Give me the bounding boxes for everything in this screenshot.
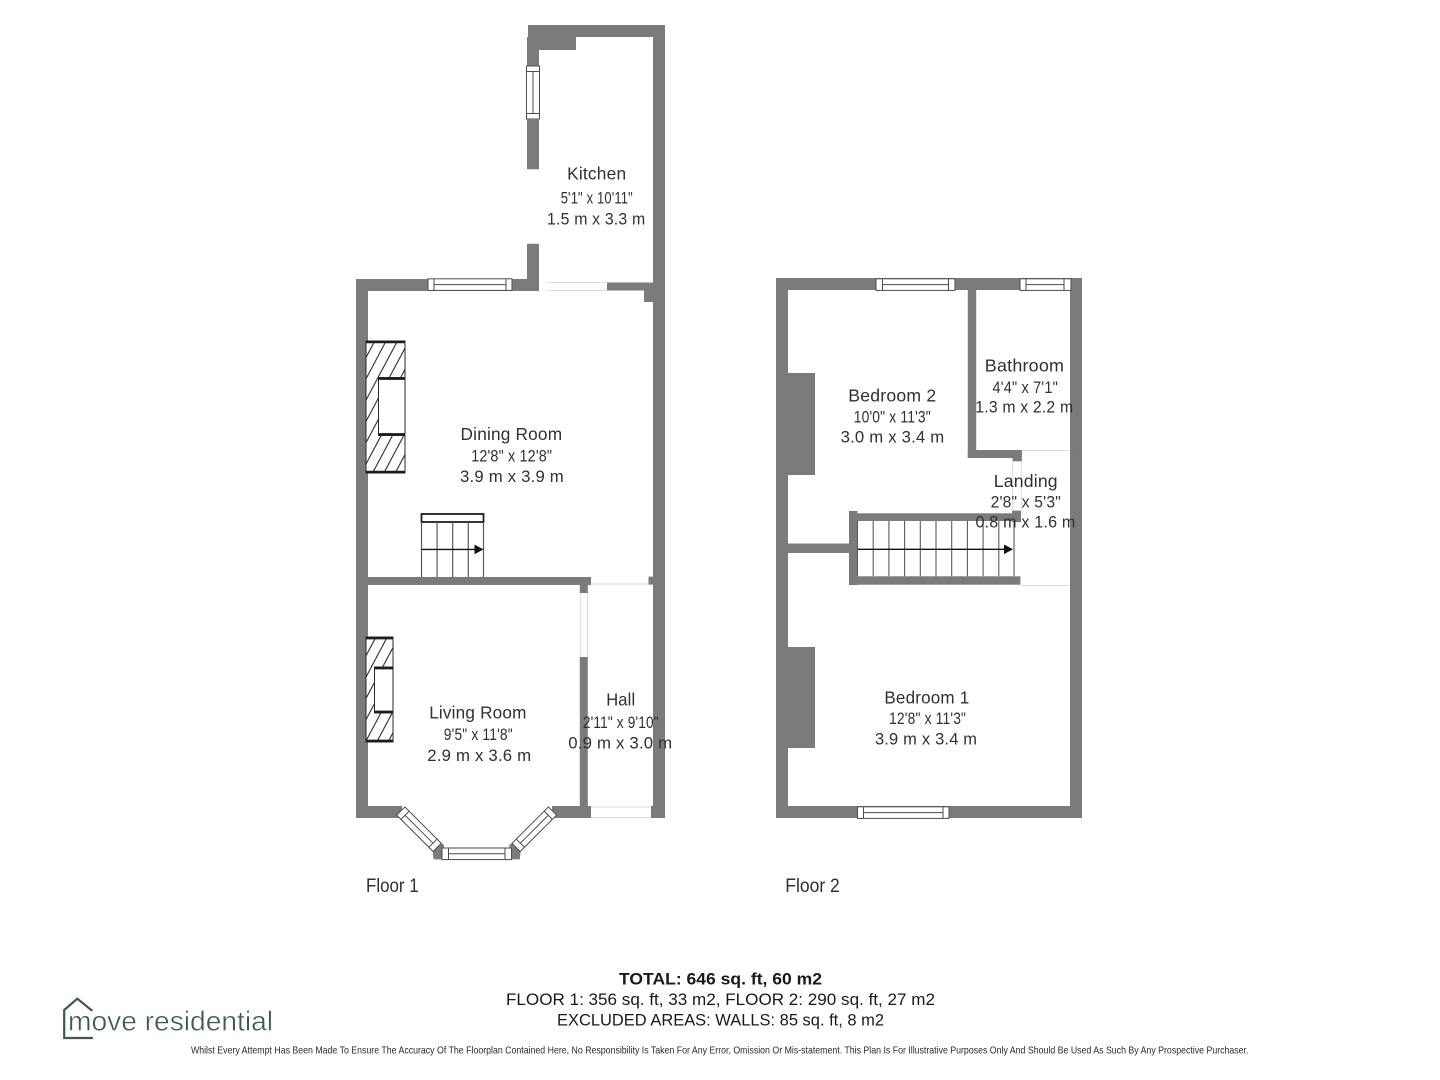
svg-text:1.3 m x 2.2 m: 1.3 m x 2.2 m bbox=[975, 397, 1073, 416]
svg-text:0.9 m x 3.0 m: 0.9 m x 3.0 m bbox=[568, 734, 672, 753]
svg-text:12'8" x 11'3": 12'8" x 11'3" bbox=[889, 709, 966, 728]
svg-text:Dining Room: Dining Room bbox=[461, 424, 563, 444]
svg-text:Whilst Every Attempt Has Been: Whilst Every Attempt Has Been Made To En… bbox=[191, 1046, 1249, 1057]
svg-text:Bedroom 1: Bedroom 1 bbox=[884, 688, 969, 708]
svg-text:2.9 m x 3.6 m: 2.9 m x 3.6 m bbox=[427, 746, 531, 765]
svg-text:5'1" x 10'11": 5'1" x 10'11" bbox=[561, 188, 633, 207]
svg-text:2'11" x 9'10": 2'11" x 9'10" bbox=[583, 713, 659, 732]
svg-text:0.8 m x 1.6 m: 0.8 m x 1.6 m bbox=[976, 512, 1076, 531]
svg-text:3.0 m x 3.4 m: 3.0 m x 3.4 m bbox=[841, 428, 945, 447]
svg-text:1.5 m x 3.3 m: 1.5 m x 3.3 m bbox=[547, 210, 645, 229]
svg-text:Landing: Landing bbox=[994, 471, 1058, 491]
svg-text:Kitchen: Kitchen bbox=[567, 164, 626, 184]
svg-text:Living Room: Living Room bbox=[429, 703, 526, 723]
svg-text:12'8" x 12'8": 12'8" x 12'8" bbox=[471, 447, 552, 466]
svg-text:Floor 2: Floor 2 bbox=[785, 876, 840, 897]
svg-text:TOTAL: 646 sq. ft, 60 m2: TOTAL: 646 sq. ft, 60 m2 bbox=[619, 970, 822, 989]
svg-text:Bedroom 2: Bedroom 2 bbox=[848, 386, 936, 406]
svg-text:3.9 m x 3.4 m: 3.9 m x 3.4 m bbox=[875, 730, 977, 749]
svg-text:FLOOR 1: 356 sq. ft, 33 m2, FL: FLOOR 1: 356 sq. ft, 33 m2, FLOOR 2: 290… bbox=[506, 990, 935, 1009]
svg-text:Hall: Hall bbox=[606, 690, 635, 710]
svg-text:Floor 1: Floor 1 bbox=[366, 876, 419, 897]
svg-text:EXCLUDED AREAS: WALLS: 85 sq.: EXCLUDED AREAS: WALLS: 85 sq. ft, 8 m2 bbox=[557, 1011, 884, 1030]
svg-text:Bathroom: Bathroom bbox=[985, 356, 1064, 376]
svg-text:4'4" x 7'1": 4'4" x 7'1" bbox=[993, 378, 1058, 397]
svg-text:2'8" x 5'3": 2'8" x 5'3" bbox=[991, 493, 1061, 512]
svg-text:move residential: move residential bbox=[68, 1006, 273, 1037]
svg-text:3.9 m x 3.9 m: 3.9 m x 3.9 m bbox=[460, 467, 564, 486]
svg-text:9'5" x 11'8": 9'5" x 11'8" bbox=[444, 725, 513, 744]
svg-text:10'0" x 11'3": 10'0" x 11'3" bbox=[854, 407, 931, 426]
